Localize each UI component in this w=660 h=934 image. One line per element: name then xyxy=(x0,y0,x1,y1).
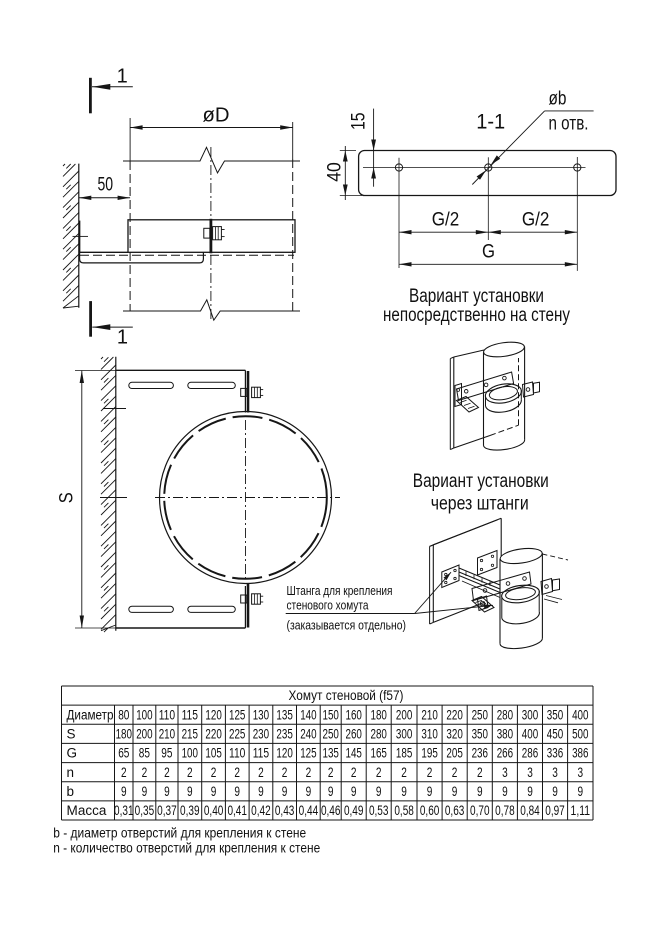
svg-text:n: n xyxy=(67,765,75,780)
svg-text:2: 2 xyxy=(477,765,483,780)
svg-text:9: 9 xyxy=(164,784,170,799)
svg-text:125: 125 xyxy=(229,707,245,722)
svg-text:210: 210 xyxy=(159,727,175,742)
svg-text:286: 286 xyxy=(522,746,538,761)
svg-text:9: 9 xyxy=(211,784,217,799)
svg-text:9: 9 xyxy=(401,784,407,799)
svg-text:120: 120 xyxy=(276,746,292,761)
svg-text:0,44: 0,44 xyxy=(299,803,319,818)
svg-text:0,39: 0,39 xyxy=(180,803,200,818)
svg-text:0,58: 0,58 xyxy=(394,803,414,818)
svg-text:2: 2 xyxy=(452,765,458,780)
svg-text:65: 65 xyxy=(118,746,129,761)
svg-text:n - количество отверстий для к: n - количество отверстий для крепления к… xyxy=(53,840,320,856)
svg-text:2: 2 xyxy=(164,765,170,780)
svg-text:200: 200 xyxy=(396,707,412,722)
svg-text:336: 336 xyxy=(547,746,563,761)
svg-text:205: 205 xyxy=(446,746,462,761)
svg-text:Хомут стеновой (f57): Хомут стеновой (f57) xyxy=(289,688,404,703)
svg-text:380: 380 xyxy=(497,727,513,742)
svg-text:225: 225 xyxy=(229,727,245,742)
svg-text:210: 210 xyxy=(421,707,437,722)
svg-text:125: 125 xyxy=(300,746,316,761)
svg-text:G: G xyxy=(67,746,78,761)
svg-text:Масса: Масса xyxy=(67,803,107,818)
svg-text:0,78: 0,78 xyxy=(495,803,515,818)
svg-text:9: 9 xyxy=(376,784,382,799)
svg-text:80: 80 xyxy=(118,707,129,722)
svg-text:120: 120 xyxy=(205,707,221,722)
svg-text:350: 350 xyxy=(472,727,488,742)
svg-text:9: 9 xyxy=(282,784,288,799)
svg-text:150: 150 xyxy=(323,707,339,722)
svg-text:0,97: 0,97 xyxy=(545,803,565,818)
svg-text:9: 9 xyxy=(328,784,334,799)
svg-text:230: 230 xyxy=(253,727,269,742)
svg-text:0,40: 0,40 xyxy=(204,803,224,818)
svg-text:85: 85 xyxy=(139,746,150,761)
svg-text:1: 1 xyxy=(117,66,128,88)
svg-text:9: 9 xyxy=(351,784,357,799)
svg-text:450: 450 xyxy=(547,727,563,742)
svg-text:9: 9 xyxy=(452,784,458,799)
svg-text:9: 9 xyxy=(502,784,508,799)
svg-text:непосредственно на стену: непосредственно на стену xyxy=(383,305,570,326)
svg-text:40: 40 xyxy=(325,162,346,182)
svg-text:стенового хомута: стенового хомута xyxy=(287,597,370,612)
svg-text:215: 215 xyxy=(182,727,198,742)
svg-text:220: 220 xyxy=(205,727,221,742)
svg-text:9: 9 xyxy=(306,784,312,799)
svg-text:260: 260 xyxy=(346,727,362,742)
svg-text:9: 9 xyxy=(234,784,240,799)
svg-text:135: 135 xyxy=(323,746,339,761)
svg-text:400: 400 xyxy=(572,707,588,722)
svg-text:S: S xyxy=(67,727,76,742)
svg-text:130: 130 xyxy=(253,707,269,722)
svg-text:0,35: 0,35 xyxy=(135,803,155,818)
svg-text:300: 300 xyxy=(396,727,412,742)
svg-text:9: 9 xyxy=(477,784,483,799)
svg-text:100: 100 xyxy=(182,746,198,761)
svg-text:220: 220 xyxy=(446,707,462,722)
svg-text:0,46: 0,46 xyxy=(321,803,341,818)
svg-text:b: b xyxy=(67,784,75,799)
svg-text:1,11: 1,11 xyxy=(571,803,591,818)
svg-text:110: 110 xyxy=(159,707,175,722)
svg-text:S: S xyxy=(57,492,78,503)
svg-text:100: 100 xyxy=(136,707,152,722)
svg-text:2: 2 xyxy=(401,765,407,780)
svg-text:n отв.: n отв. xyxy=(549,114,589,135)
svg-text:145: 145 xyxy=(346,746,362,761)
svg-text:9: 9 xyxy=(121,784,127,799)
svg-text:250: 250 xyxy=(323,727,339,742)
svg-text:3: 3 xyxy=(578,765,584,780)
svg-text:50: 50 xyxy=(98,175,114,196)
svg-text:386: 386 xyxy=(572,746,588,761)
svg-text:300: 300 xyxy=(522,707,538,722)
svg-text:235: 235 xyxy=(276,727,292,742)
svg-text:9: 9 xyxy=(187,784,193,799)
svg-text:G/2: G/2 xyxy=(432,210,460,231)
svg-text:400: 400 xyxy=(522,727,538,742)
svg-text:0,60: 0,60 xyxy=(420,803,440,818)
svg-text:Вариант установки: Вариант установки xyxy=(413,471,549,492)
svg-text:310: 310 xyxy=(421,727,437,742)
svg-text:0,84: 0,84 xyxy=(520,803,540,818)
svg-text:320: 320 xyxy=(446,727,462,742)
svg-text:2: 2 xyxy=(258,765,264,780)
svg-text:3: 3 xyxy=(552,765,558,780)
svg-text:Диаметр: Диаметр xyxy=(67,707,114,722)
svg-text:140: 140 xyxy=(300,707,316,722)
svg-text:280: 280 xyxy=(371,727,387,742)
svg-text:øb: øb xyxy=(549,89,567,110)
svg-text:3: 3 xyxy=(502,765,508,780)
svg-text:0,41: 0,41 xyxy=(227,803,247,818)
svg-text:(заказывается отдельно): (заказывается отдельно) xyxy=(287,618,407,633)
svg-text:3: 3 xyxy=(527,765,533,780)
svg-text:Штанга для крепления: Штанга для крепления xyxy=(287,583,393,598)
svg-text:350: 350 xyxy=(547,707,563,722)
svg-text:b - диаметр отверстий для креп: b - диаметр отверстий для крепления к ст… xyxy=(53,825,306,841)
svg-text:0,43: 0,43 xyxy=(275,803,295,818)
svg-text:9: 9 xyxy=(142,784,148,799)
svg-text:115: 115 xyxy=(253,746,269,761)
svg-text:G/2: G/2 xyxy=(522,210,550,231)
svg-text:280: 280 xyxy=(497,707,513,722)
svg-text:Вариант установки: Вариант установки xyxy=(409,286,544,307)
svg-text:2: 2 xyxy=(306,765,312,780)
svg-text:0,53: 0,53 xyxy=(369,803,389,818)
svg-text:105: 105 xyxy=(205,746,221,761)
svg-text:1: 1 xyxy=(117,327,128,349)
svg-text:2: 2 xyxy=(234,765,240,780)
svg-text:240: 240 xyxy=(300,727,316,742)
svg-text:200: 200 xyxy=(136,727,152,742)
svg-text:165: 165 xyxy=(371,746,387,761)
svg-text:2: 2 xyxy=(376,765,382,780)
svg-text:180: 180 xyxy=(371,707,387,722)
svg-text:2: 2 xyxy=(282,765,288,780)
svg-text:0,63: 0,63 xyxy=(445,803,465,818)
svg-text:2: 2 xyxy=(187,765,193,780)
svg-text:0,37: 0,37 xyxy=(157,803,177,818)
svg-text:110: 110 xyxy=(229,746,245,761)
svg-text:2: 2 xyxy=(351,765,357,780)
svg-text:236: 236 xyxy=(472,746,488,761)
svg-text:9: 9 xyxy=(258,784,264,799)
svg-text:250: 250 xyxy=(472,707,488,722)
svg-text:135: 135 xyxy=(276,707,292,722)
svg-text:95: 95 xyxy=(161,746,172,761)
svg-text:160: 160 xyxy=(346,707,362,722)
svg-text:2: 2 xyxy=(427,765,433,780)
svg-text:266: 266 xyxy=(497,746,513,761)
svg-text:9: 9 xyxy=(578,784,584,799)
svg-text:9: 9 xyxy=(527,784,533,799)
svg-text:0,42: 0,42 xyxy=(251,803,271,818)
svg-text:9: 9 xyxy=(427,784,433,799)
svg-text:0,31: 0,31 xyxy=(114,803,134,818)
svg-text:2: 2 xyxy=(328,765,334,780)
svg-text:500: 500 xyxy=(572,727,588,742)
svg-text:G: G xyxy=(482,242,495,263)
svg-text:øD: øD xyxy=(203,105,230,127)
svg-text:через штанги: через штанги xyxy=(431,494,529,515)
svg-text:115: 115 xyxy=(182,707,198,722)
svg-text:195: 195 xyxy=(421,746,437,761)
svg-text:9: 9 xyxy=(552,784,558,799)
svg-text:2: 2 xyxy=(142,765,148,780)
svg-text:2: 2 xyxy=(121,765,127,780)
svg-text:1-1: 1-1 xyxy=(476,111,505,134)
svg-text:185: 185 xyxy=(396,746,412,761)
svg-text:0,49: 0,49 xyxy=(344,803,364,818)
svg-text:180: 180 xyxy=(116,727,132,742)
svg-text:2: 2 xyxy=(211,765,217,780)
svg-text:15: 15 xyxy=(348,113,369,131)
svg-text:0,70: 0,70 xyxy=(470,803,490,818)
